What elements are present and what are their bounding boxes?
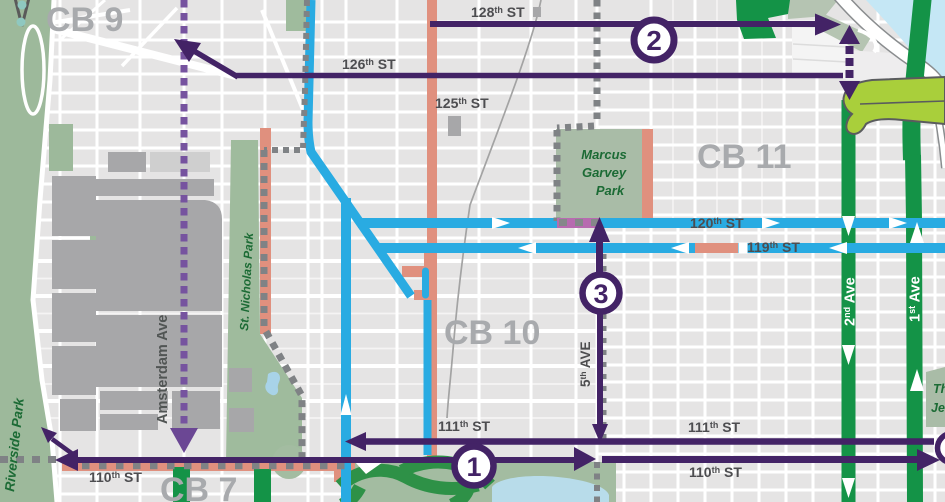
svg-text:1: 1 [466, 452, 481, 482]
svg-text:2: 2 [646, 25, 662, 56]
svg-text:3: 3 [593, 279, 608, 309]
svg-text:Jeffe: Jeffe [931, 401, 945, 415]
svg-text:5th AVE: 5th AVE [578, 341, 593, 387]
svg-text:Thom: Thom [933, 382, 945, 396]
svg-text:CB 11: CB 11 [697, 138, 792, 176]
svg-text:1st Ave: 1st Ave [907, 276, 924, 322]
svg-text:2nd Ave: 2nd Ave [842, 277, 859, 326]
svg-text:CB 7: CB 7 [160, 471, 237, 502]
svg-text:Marcus: Marcus [581, 147, 627, 162]
svg-text:CB 10: CB 10 [444, 314, 540, 352]
svg-text:Amsterdam Ave: Amsterdam Ave [155, 315, 171, 424]
svg-text:CB 9: CB 9 [46, 1, 123, 39]
svg-text:Garvey: Garvey [582, 165, 627, 180]
svg-text:Park: Park [596, 183, 625, 198]
